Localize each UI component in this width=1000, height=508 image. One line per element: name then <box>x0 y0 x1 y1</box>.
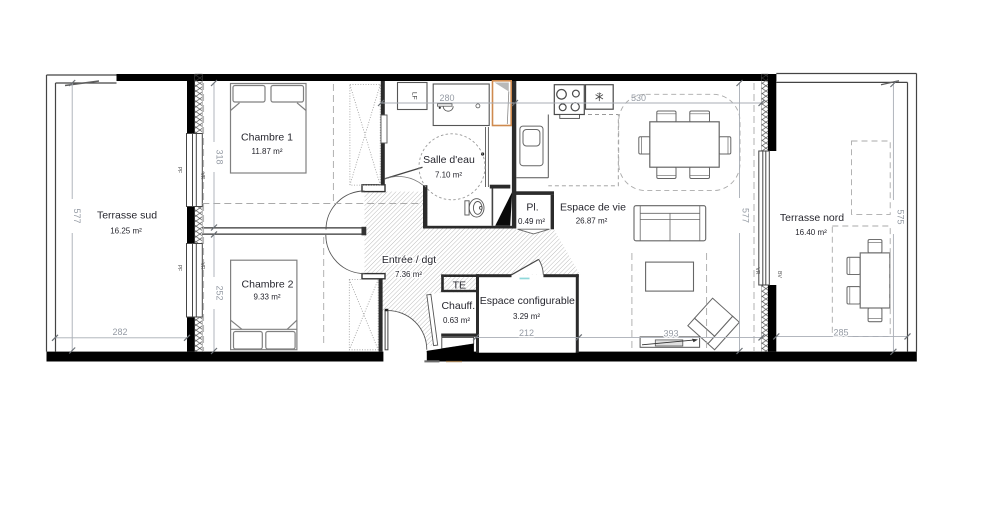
svg-text:11.87 m²: 11.87 m² <box>252 147 283 156</box>
svg-text:Chauff.: Chauff. <box>441 300 475 312</box>
svg-text:16.40 m²: 16.40 m² <box>795 228 827 237</box>
svg-text:VR: VR <box>754 268 760 275</box>
svg-text:0.63 m²: 0.63 m² <box>443 316 470 325</box>
svg-text:PF: PF <box>176 265 182 271</box>
svg-text:Salle d'eau: Salle d'eau <box>423 154 475 166</box>
svg-text:212: 212 <box>519 328 534 338</box>
svg-text:Pl.: Pl. <box>526 201 538 213</box>
svg-text:TE: TE <box>453 279 466 291</box>
svg-text:577: 577 <box>72 208 82 223</box>
svg-text:26.87 m²: 26.87 m² <box>576 216 608 225</box>
svg-text:252: 252 <box>215 285 225 300</box>
svg-text:282: 282 <box>112 327 127 337</box>
svg-text:LF: LF <box>410 92 417 100</box>
svg-text:577: 577 <box>741 208 751 223</box>
svg-text:0.49 m²: 0.49 m² <box>518 217 545 226</box>
svg-text:9.33 m²: 9.33 m² <box>253 292 280 301</box>
svg-text:PF: PF <box>176 167 182 173</box>
svg-text:Entrée / dgt: Entrée / dgt <box>382 254 436 266</box>
svg-text:Chambre 2: Chambre 2 <box>242 278 294 290</box>
svg-text:Terrasse nord: Terrasse nord <box>780 212 844 224</box>
svg-text:318: 318 <box>215 149 225 164</box>
svg-text:393: 393 <box>663 328 678 338</box>
svg-text:Terrasse sud: Terrasse sud <box>97 209 157 221</box>
svg-text:285: 285 <box>833 328 848 338</box>
svg-text:280: 280 <box>439 93 454 103</box>
svg-text:BV: BV <box>776 271 782 278</box>
svg-text:Espace configurable: Espace configurable <box>480 295 575 307</box>
svg-text:3.29 m²: 3.29 m² <box>513 312 540 321</box>
svg-text:7.10 m²: 7.10 m² <box>435 171 462 180</box>
svg-text:VR: VR <box>199 173 205 180</box>
svg-text:Espace de vie: Espace de vie <box>560 202 626 214</box>
svg-text:530: 530 <box>631 93 646 103</box>
svg-text:7.36 m²: 7.36 m² <box>395 270 422 279</box>
svg-text:VR: VR <box>199 263 205 270</box>
svg-text:16.25 m²: 16.25 m² <box>110 227 142 236</box>
svg-text:Chambre 1: Chambre 1 <box>241 131 293 143</box>
svg-text:575: 575 <box>896 209 906 224</box>
